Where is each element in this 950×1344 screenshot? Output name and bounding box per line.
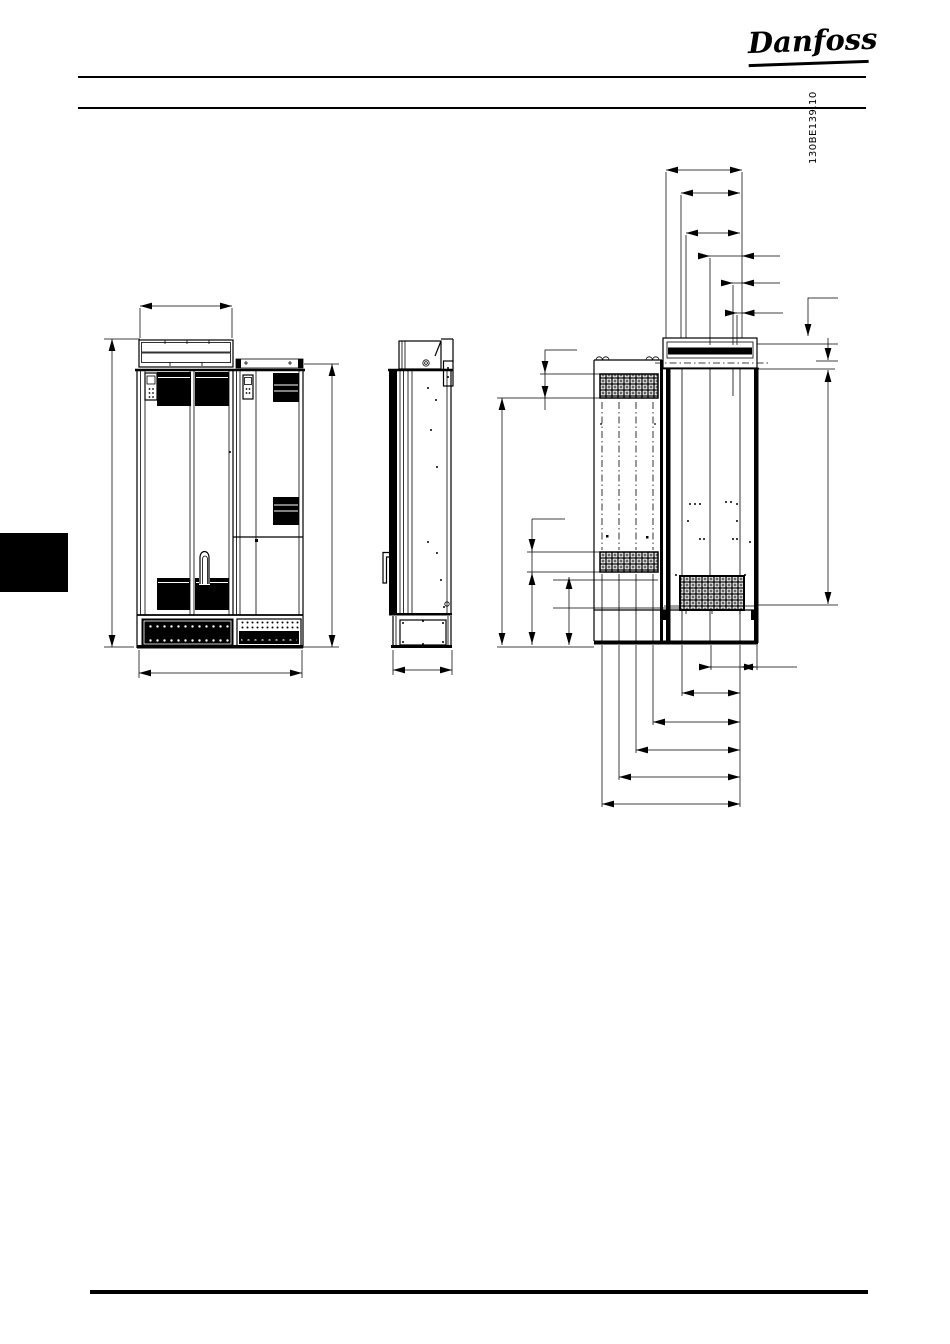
front-view	[104, 306, 339, 678]
front-plinth	[137, 615, 303, 649]
back-view-dimensions-bottom	[602, 645, 797, 807]
back-view-dimensions-top	[666, 170, 783, 345]
back-view-dimensions-right	[757, 298, 838, 605]
front-top-box	[139, 340, 233, 367]
front-right-top-bar	[236, 359, 303, 368]
side-body	[383, 371, 452, 616]
back-view	[497, 170, 838, 807]
back-right-panel	[666, 368, 759, 643]
terminal-grid-bottom	[600, 552, 658, 572]
back-left-panel	[594, 357, 663, 641]
front-keypad-right	[243, 375, 253, 399]
terminal-grid-top	[600, 374, 658, 398]
front-vent-panels	[157, 372, 299, 610]
front-keypad-left	[145, 373, 157, 400]
side-view-dimensions	[393, 650, 452, 675]
side-door-handle	[383, 553, 390, 584]
side-plinth	[391, 616, 452, 648]
engineering-drawing	[0, 0, 950, 1344]
gland-plate-grid	[680, 576, 744, 610]
side-view	[383, 339, 453, 675]
side-top-box	[399, 339, 453, 386]
back-top-box	[655, 338, 768, 369]
front-door-handle	[199, 552, 210, 586]
manual-page: Danfoss 130BE139.10	[0, 0, 950, 1344]
